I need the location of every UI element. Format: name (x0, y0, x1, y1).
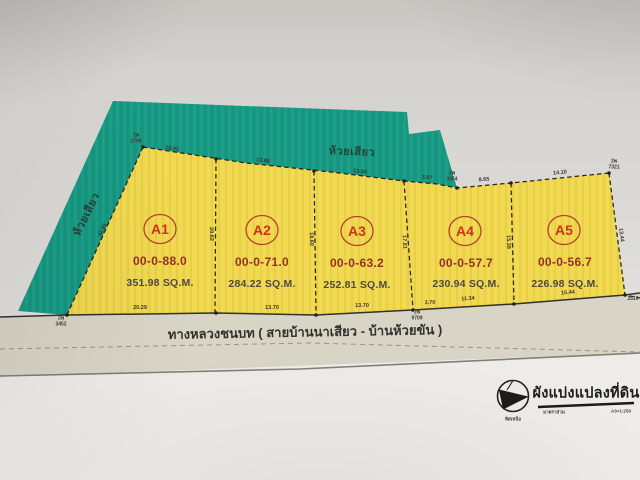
plot-a4-label: A4 (456, 223, 474, 239)
plot-a5-sqm-area: 226.98 SQ.M. (531, 278, 598, 290)
dim-top-notch: 3.67 (421, 175, 432, 182)
dim-top-a3: 13.84 (353, 168, 367, 175)
plot-a3-label: A3 (348, 223, 366, 239)
plot-a1-rai-area: 00-0-88.0 (133, 254, 187, 268)
plot-a2-rai-area: 00-0-71.0 (235, 255, 289, 269)
dim-divider-a3-a4: 17.81 (401, 235, 408, 249)
stream-name-top: ห้วยเสียว (328, 141, 375, 161)
plot-a5-label: A5 (555, 222, 573, 238)
plot-a3-sqm-area: 252.81 SQ.M. (323, 279, 390, 291)
dim-bottom-a4: 11.34 (461, 296, 475, 303)
plot-a5-rai-area: 00-0-56.7 (538, 255, 592, 269)
land-subdivision-plan-photo: ห้วยเสียว ห้วยเสียว ทางหลวงชนบท ( สายบ้า… (0, 0, 640, 480)
survey-marker-nw: 2พ1790 (130, 133, 141, 144)
scale-value: A3=1:250 (611, 409, 631, 414)
plot-a1-sqm-area: 351.98 SQ.M. (126, 277, 193, 289)
dim-bottom-a2: 13.70 (265, 305, 279, 311)
survey-marker-sw: 2พ3452 (55, 316, 66, 327)
survey-marker-ne: 2พ7321 (608, 159, 619, 170)
plot-a4-sqm-area: 230.94 SQ.M. (432, 278, 499, 290)
north-label: ทิศเหนือ (505, 416, 521, 423)
dim-divider-a4-a5: 15.38 (505, 235, 511, 249)
plot-a2-sqm-area: 284.22 SQ.M. (228, 278, 295, 290)
dim-bottom-a5: 15.44 (561, 289, 575, 296)
plot-a3-rai-area: 00-0-63.2 (330, 256, 384, 270)
plan-title: ผังแบ่งแปลงที่ดิน (532, 382, 639, 405)
survey-marker-arm: 2พ3354 (446, 171, 457, 182)
survey-marker-se: 2510 (627, 297, 638, 303)
dim-bottom-notch: 3.70 (424, 300, 435, 307)
dim-bottom-a3: 13.70 (355, 303, 369, 309)
dim-divider-a1-a2: 20.62 (208, 227, 214, 241)
scale-label: มาตราส่วน (543, 409, 565, 416)
plot-a4-rai-area: 00-0-57.7 (439, 256, 493, 270)
dim-divider-a2-a3: 18.60 (308, 232, 314, 246)
dim-bottom-a1: 20.29 (133, 305, 147, 311)
survey-marker-mid: 2พ9709 (411, 310, 422, 321)
plot-a1-label: A1 (151, 221, 169, 237)
plot-a2-label: A2 (253, 222, 271, 238)
dim-top-a4: 8.65 (478, 177, 489, 184)
